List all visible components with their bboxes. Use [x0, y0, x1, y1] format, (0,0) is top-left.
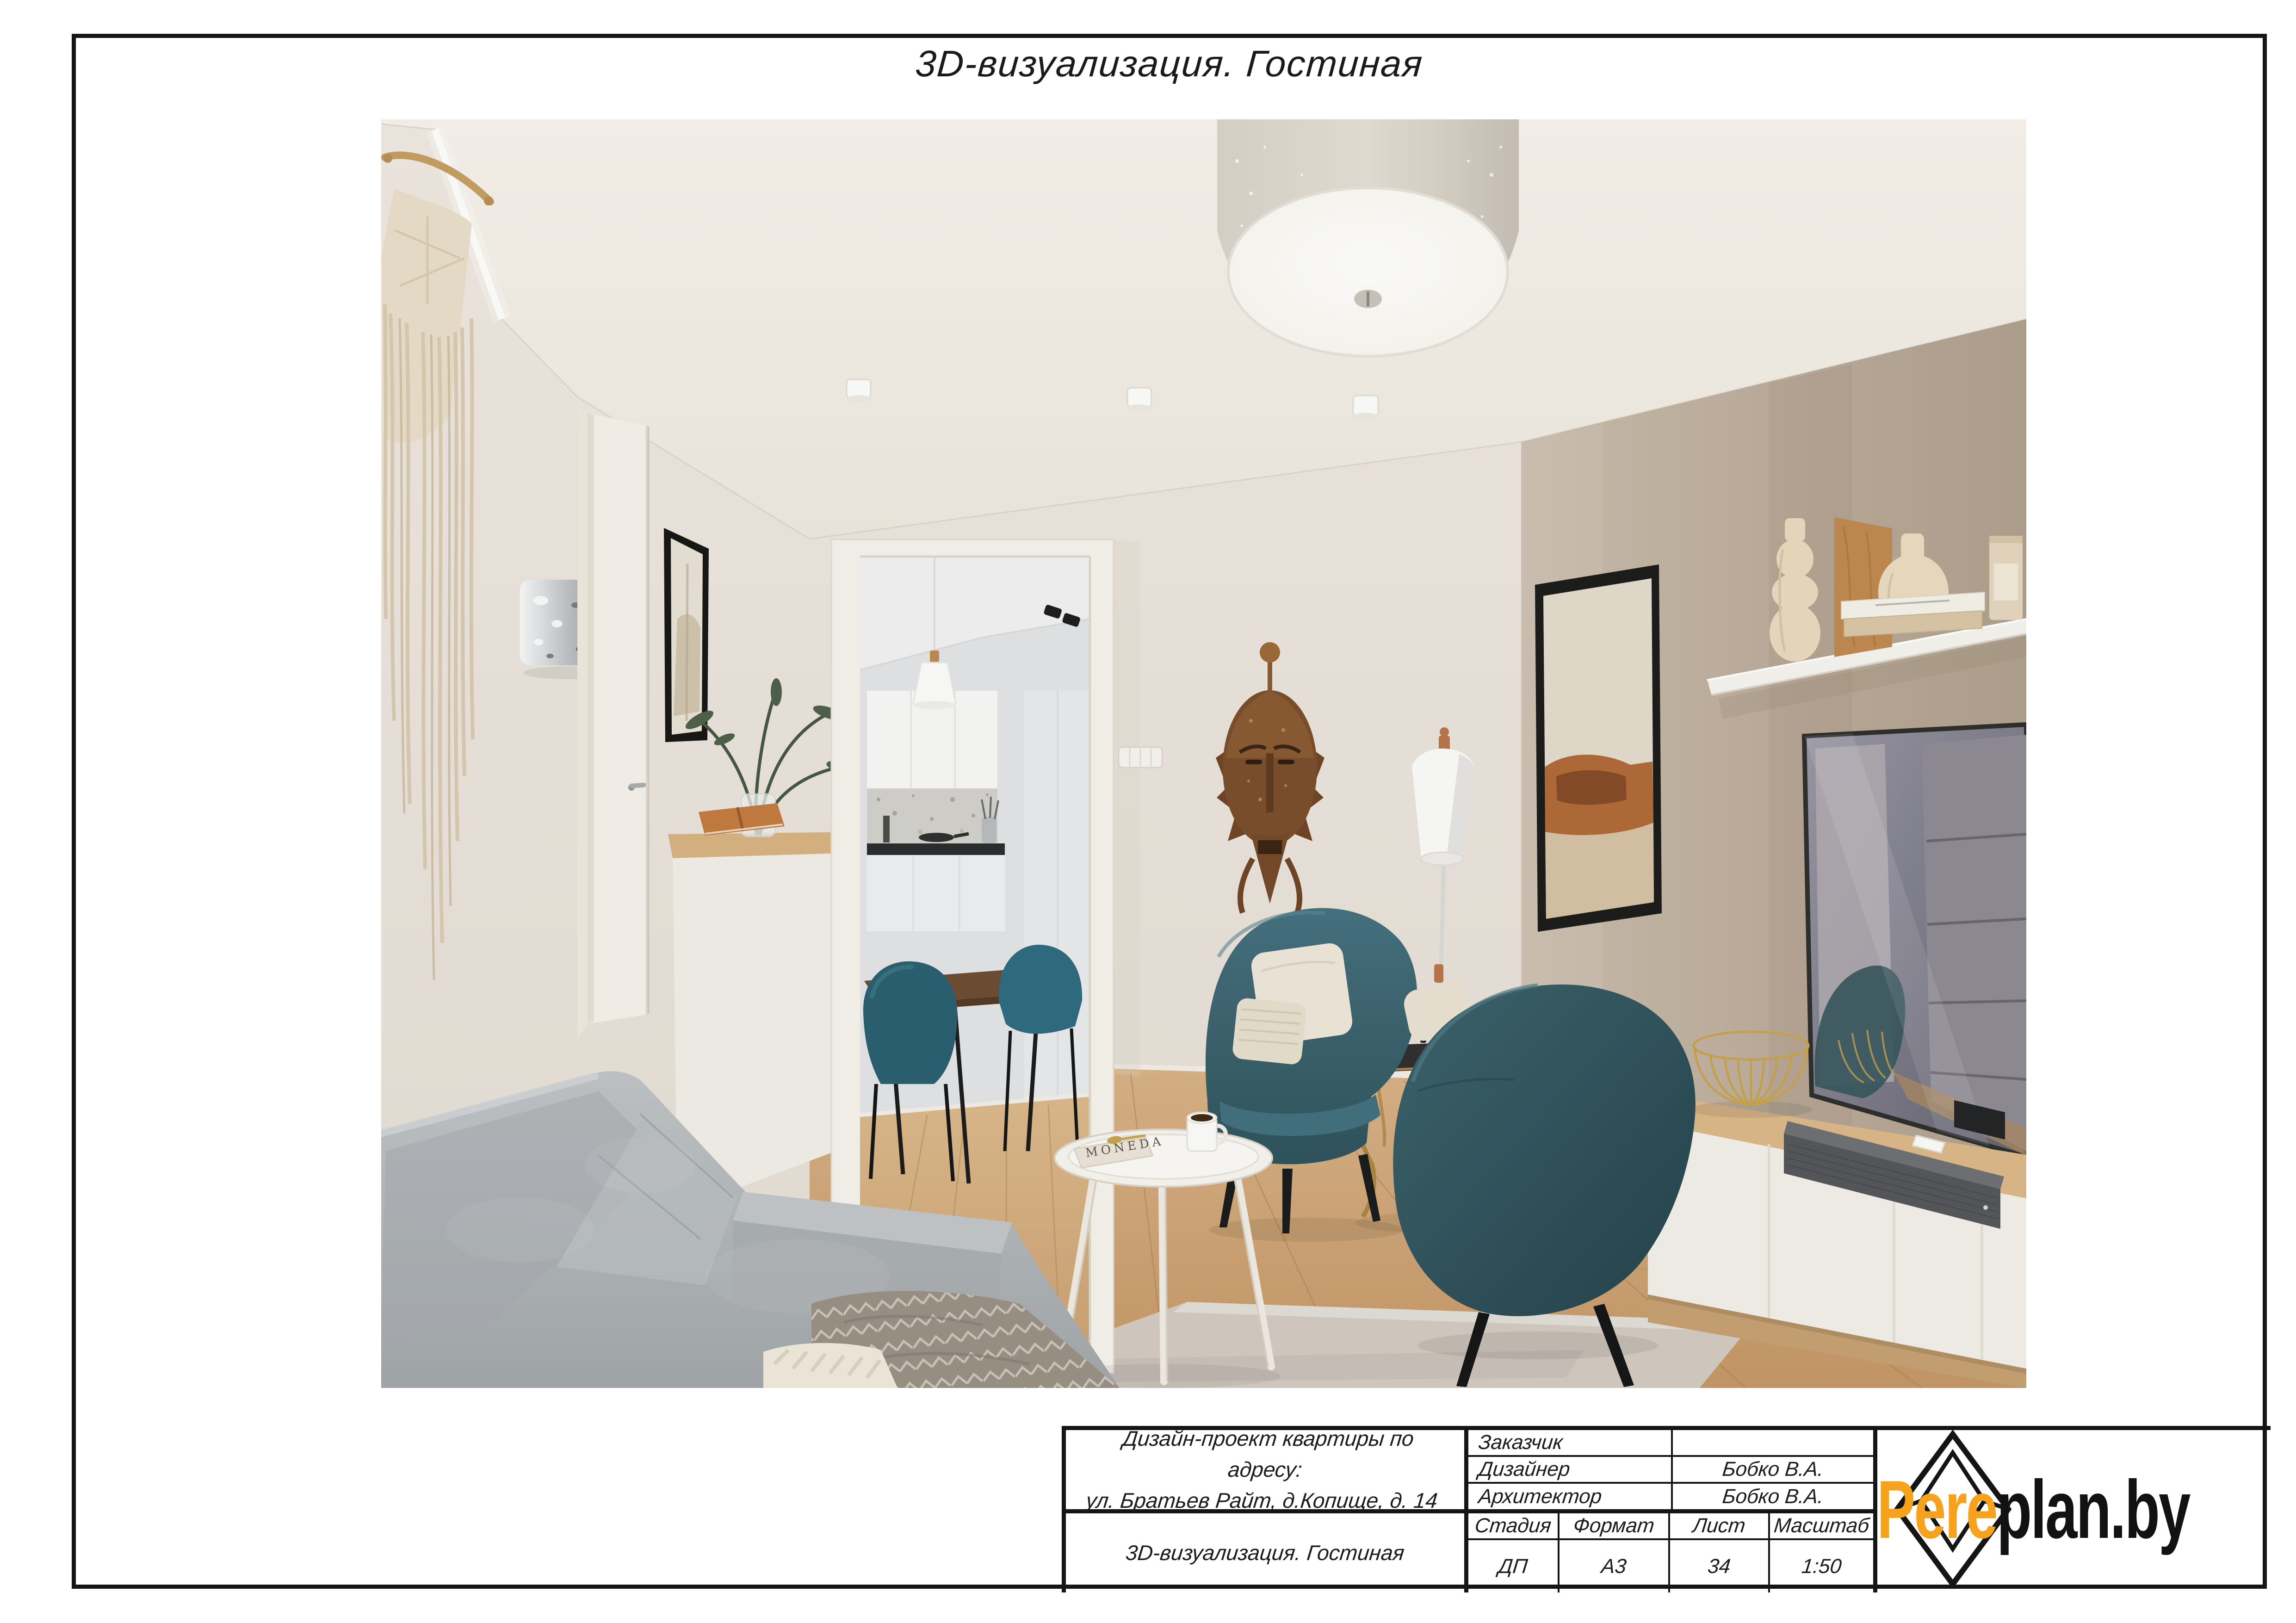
design-sheet-page: 3D-визуализация. Гостиная [0, 0, 2296, 1623]
project-address-line1: Дизайн-проект квартиры по адресу: [1078, 1423, 1455, 1485]
project-address-cell: Дизайн-проект квартиры по адресу: ул. Бр… [1062, 1430, 1468, 1509]
project-address-line2: ул. Братьев Райт, д.Копище, д. 14 [1075, 1485, 1448, 1516]
format-value: А3 [1557, 1540, 1671, 1592]
logo-text-planby: plan.by [1997, 1463, 2190, 1555]
role-customer-value [1671, 1430, 1875, 1455]
stage-label: Стадия [1467, 1513, 1559, 1538]
role-architect-label: Архитектор [1467, 1484, 1672, 1509]
role-designer-label: Дизайнер [1467, 1457, 1672, 1482]
scale-label: Масштаб [1769, 1513, 1875, 1538]
sheet-label: Лист [1669, 1513, 1770, 1538]
stage-value: ДП [1466, 1540, 1560, 1592]
pereplan-logo: Pereplan.by [1873, 1426, 2271, 1592]
page-title: 3D-визуализация. Гостиная [70, 43, 2268, 85]
vignette [381, 119, 2026, 1388]
role-designer-value: Бобко В.А. [1671, 1457, 1875, 1482]
scale-value: 1:50 [1767, 1540, 1876, 1592]
role-customer-label: Заказчик [1467, 1430, 1672, 1455]
sheet-value: 34 [1667, 1540, 1771, 1592]
format-label: Формат [1558, 1513, 1670, 1538]
sheet-name-cell: 3D-визуализация. Гостиная [1062, 1513, 1468, 1592]
role-architect-value: Бобко В.А. [1671, 1484, 1875, 1509]
render-image: MONEDA [381, 119, 2026, 1388]
logo-wordmark: Pereplan.by [1877, 1467, 2190, 1552]
logo-text-pere: Pere [1877, 1463, 1997, 1555]
